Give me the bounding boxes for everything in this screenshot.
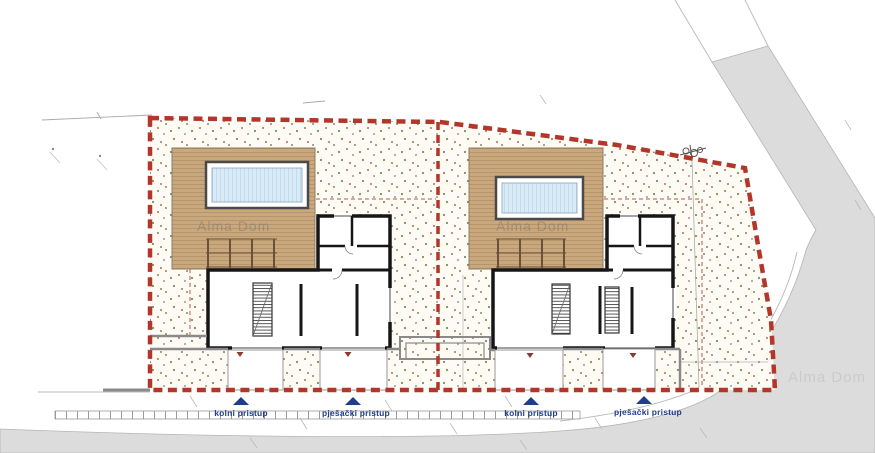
access-label: pješački pristup: [322, 408, 390, 418]
house-left-pool: [206, 162, 308, 208]
curb-hatch-strip: [55, 411, 580, 419]
access-arrow-icon: [233, 397, 249, 405]
watermark-text: Alma Dom: [496, 218, 569, 234]
watermark-text: Alma Dom: [788, 369, 866, 386]
site-plan-canvas: kolni pristup pješački pristup kolni pri…: [0, 0, 875, 453]
access-arrow-icon: [345, 397, 361, 405]
access-label: pješački pristup: [614, 407, 682, 417]
watermark-text: Alma Dom: [197, 218, 270, 234]
house-right-pool: [496, 177, 583, 219]
house-left-stairs: [253, 283, 272, 336]
site-plan-page: kolni pristup pješački pristup kolni pri…: [0, 0, 875, 453]
access-arrow-icon: [523, 397, 539, 405]
access-label: kolni pristup: [504, 408, 558, 418]
access-arrow-icon: [636, 396, 652, 404]
utility-pole-icon: [680, 145, 706, 158]
access-label: kolni pristup: [214, 408, 268, 418]
